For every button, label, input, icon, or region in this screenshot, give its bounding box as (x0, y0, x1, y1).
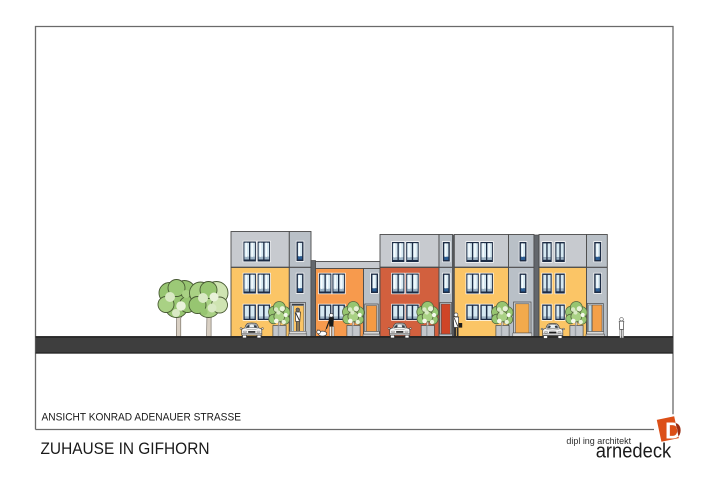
svg-text:ANSICHT KONRAD ADENAUER STRASS: ANSICHT KONRAD ADENAUER STRASSE (42, 412, 242, 424)
svg-text:ZUHAUSE IN GIFHORN: ZUHAUSE IN GIFHORN (41, 439, 210, 458)
svg-text:arnedeck: arnedeck (596, 441, 672, 463)
